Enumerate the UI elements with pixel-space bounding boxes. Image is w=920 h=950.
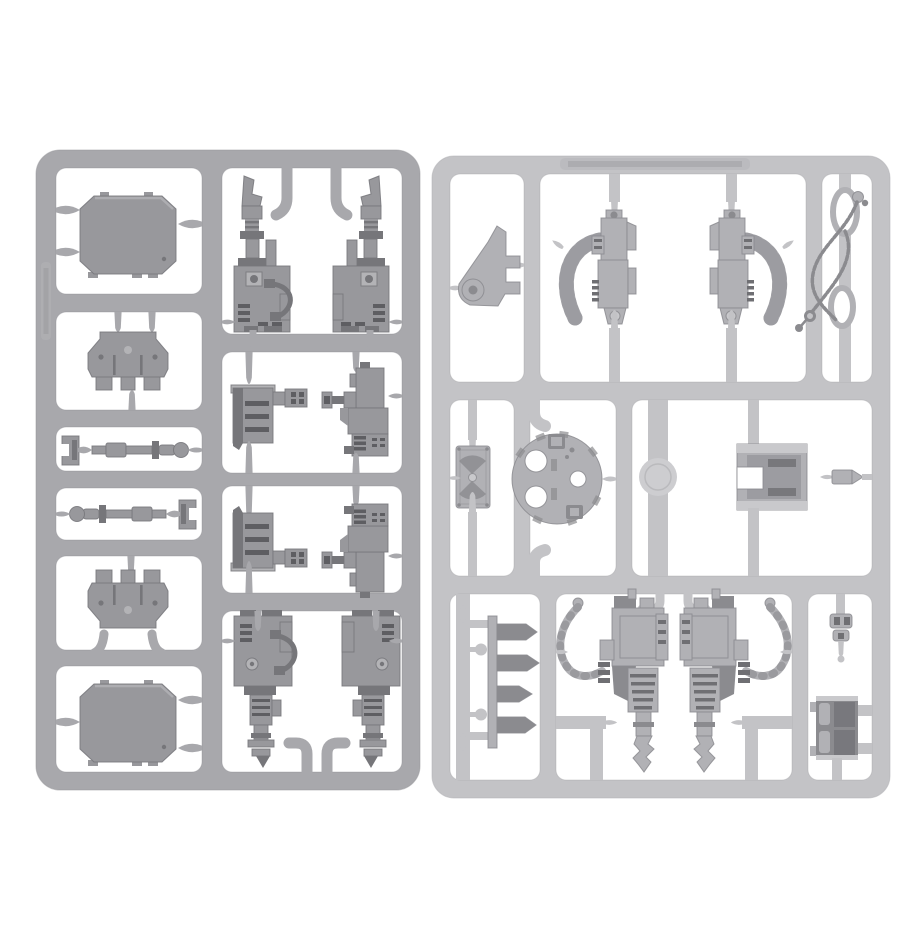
photo-stage [0, 0, 920, 950]
sprue-photo [0, 0, 920, 950]
part-bottom-hatch [80, 680, 176, 766]
embossed-code-ridge [41, 262, 51, 340]
embossed-lettering-ridge [560, 158, 750, 170]
part-top-hatch [80, 192, 176, 278]
left-sprue [36, 150, 420, 790]
